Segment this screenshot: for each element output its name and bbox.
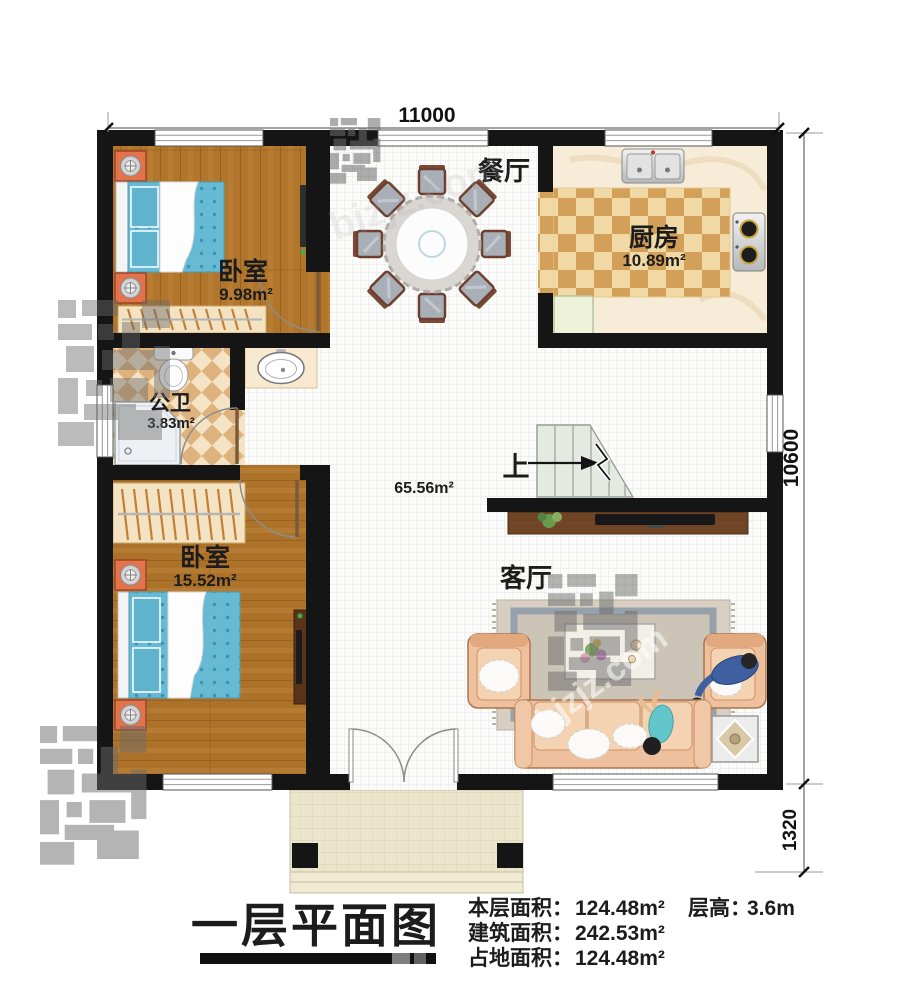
side-table-lamp xyxy=(712,716,758,762)
dimension-porch-value: 1320 xyxy=(780,809,801,851)
double-bed xyxy=(116,182,224,272)
wardrobe xyxy=(113,483,245,543)
pillow xyxy=(133,598,160,642)
stat-value: 124.48m² xyxy=(575,947,665,970)
floor-height-label: 层高： xyxy=(688,896,751,920)
bedroom2-area: 15.52m² xyxy=(173,571,237,590)
floorplan-drawing: 卧室 9.98m² 餐厅 厨房 10.89m² 公卫 3.83m² 卧室 15.… xyxy=(0,0,907,992)
porch-column xyxy=(292,843,318,868)
dimension-width-value: 11000 xyxy=(398,104,455,127)
kitchen-area: 10.89m² xyxy=(622,251,686,270)
floor-height-value: 3.6m xyxy=(747,897,795,920)
faucet-icon xyxy=(651,150,655,154)
wall xyxy=(300,465,330,480)
tv xyxy=(595,514,715,525)
wall xyxy=(306,480,330,790)
bedroom1-area: 9.98m² xyxy=(219,285,273,304)
tv-cabinet xyxy=(294,610,307,704)
bedroom2-label: 卧室 xyxy=(180,543,230,572)
pillow xyxy=(131,187,158,227)
armchair xyxy=(468,634,530,708)
bedroom1-label: 卧室 xyxy=(218,257,268,286)
stat-value: 124.48m² xyxy=(575,897,665,920)
kitchen-label: 厨房 xyxy=(629,223,679,252)
wall xyxy=(97,130,113,790)
window xyxy=(378,130,488,146)
pillow xyxy=(133,648,160,692)
nightstand xyxy=(115,560,146,590)
tv-cabinet xyxy=(508,512,748,534)
page-title: 一层平面图 xyxy=(191,899,441,952)
porch-floor xyxy=(290,790,523,872)
nightstand xyxy=(115,273,146,303)
area-statistics: 本层面积： 124.48m² 建筑面积： 242.53m² 占地面积： 124.… xyxy=(468,896,795,970)
stat-value: 242.53m² xyxy=(575,922,665,945)
window xyxy=(605,130,712,146)
wall xyxy=(538,333,783,348)
dimension-height-value: 10600 xyxy=(780,429,803,487)
hall-area: 65.56m² xyxy=(394,480,454,497)
nightstand xyxy=(115,700,146,730)
double-sink xyxy=(622,149,684,183)
dimension-top: 11000 xyxy=(103,104,784,133)
washbasin xyxy=(245,347,317,388)
stove xyxy=(733,213,765,271)
nightstand xyxy=(115,151,146,181)
window xyxy=(163,774,272,790)
fridge xyxy=(554,296,593,334)
window xyxy=(553,774,718,790)
burner-icon xyxy=(741,221,758,238)
wall xyxy=(306,130,330,272)
wardrobe xyxy=(118,306,266,333)
living-label: 客厅 xyxy=(500,563,552,593)
tv-panel xyxy=(300,185,306,247)
watermark-logo xyxy=(40,726,146,865)
window xyxy=(155,130,263,146)
wall xyxy=(538,130,553,192)
burner-icon xyxy=(741,247,758,264)
stat-label: 建筑面积： xyxy=(468,921,573,945)
stat-label: 占地面积： xyxy=(468,946,573,970)
stairs-up-label: 上 xyxy=(503,452,530,482)
wall xyxy=(230,348,245,410)
stat-label: 本层面积： xyxy=(468,897,573,920)
floorplan-page: 卧室 9.98m² 餐厅 厨房 10.89m² 公卫 3.83m² 卧室 15.… xyxy=(0,0,907,992)
porch-column xyxy=(497,843,523,868)
double-bed xyxy=(118,592,240,698)
tv-feature-wall xyxy=(487,498,783,512)
pillow xyxy=(131,231,158,267)
title-block: 一层平面图 本层面积： 124.48m² 建筑面积： 242.53m² 占地面积… xyxy=(191,896,795,970)
wall xyxy=(97,465,240,480)
